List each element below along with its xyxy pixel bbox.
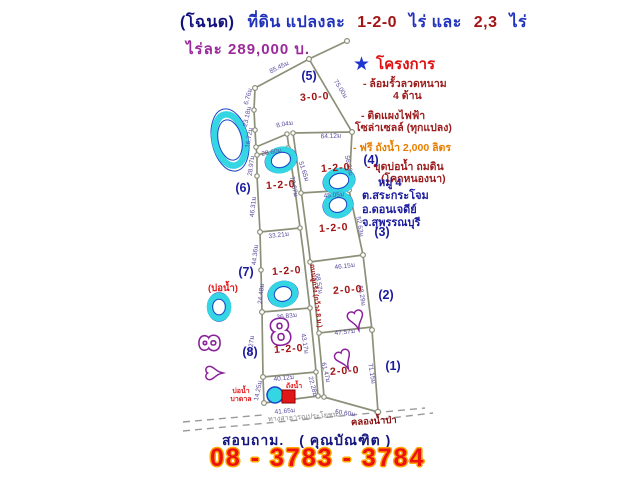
dimension-label: 8.04ม (276, 120, 294, 130)
plot-area: 2-0-0 (330, 364, 360, 378)
dimension-label: 75.00ม (332, 79, 349, 100)
watermark-digit-8: 8 (194, 335, 225, 351)
plot-number: (6) (235, 181, 250, 195)
well-circle-icon (267, 387, 283, 403)
plot-number: (2) (378, 288, 393, 302)
well-note-label: (บ่อน้ำ) (208, 280, 238, 294)
water-tank-icon (282, 390, 295, 403)
canal-label: คลองน้ำป่า (351, 412, 397, 428)
dimension-label: 40.12ม (273, 374, 294, 383)
flyer: (โฉนด) ที่ดิน แปลงละ 1-2-0 ไร่ และ 2,3 ไ… (0, 0, 640, 480)
dimension-label: 64.12ม (321, 133, 342, 141)
well-label-2: บาดาล (230, 396, 251, 403)
plot-area: 1-2-0 (266, 178, 296, 192)
dimension-label: 23.18ม (242, 106, 253, 128)
dimension-label: 24.48ม (257, 283, 266, 304)
plot-number: (5) (301, 69, 316, 83)
plot-area: 1-2-0 (272, 264, 302, 278)
plot-area: 1-2-0 (274, 342, 304, 356)
plot-number: (8) (242, 345, 257, 359)
dimension-label: 36.83ม (276, 312, 297, 321)
plot-area: 2-0-0 (333, 283, 363, 297)
plot-number: (1) (385, 359, 400, 373)
plot-number: (3) (374, 225, 389, 239)
dimension-label: 44.36ม (251, 244, 260, 265)
dimension-label: 85.45ม (269, 60, 291, 75)
plot-area: 3-0-0 (300, 90, 330, 104)
well-label-1: บ่อน้ำ (232, 384, 249, 395)
plot-diagram: 88♥♥♥ 85.45ม75.00ม6.76ม23.18ม16.72ม8.04ม… (0, 0, 640, 480)
watermark-digit-0 (269, 281, 297, 307)
dimension-label: 46.15ม (334, 262, 355, 271)
dimension-label: 46.31ม (249, 196, 258, 217)
watermark-digit-0 (213, 299, 226, 315)
dimension-label: 52.63ม (354, 216, 364, 237)
plot-area: 1-2-0 (321, 161, 351, 175)
dimension-label: 28.97ม (247, 155, 257, 176)
phone-number: 08 - 3783 - 3784 (210, 444, 425, 473)
plot-area: 1-2-0 (319, 221, 349, 235)
dimension-label: 45.05ม (323, 191, 344, 199)
dimension-label: 6.76ม (243, 88, 254, 106)
dimension-label: 47.57ม (334, 328, 355, 337)
plot-number: (7) (238, 265, 253, 279)
plot-number: (4) (363, 153, 378, 167)
dimension-label: 14.25ม (253, 380, 264, 402)
road-label: ถนนลูกรัง (กว้าง 8 ม.) (307, 263, 325, 328)
watermark-heart-icon: ♥ (199, 366, 226, 380)
dimension-label: 33.21ม (268, 231, 289, 240)
